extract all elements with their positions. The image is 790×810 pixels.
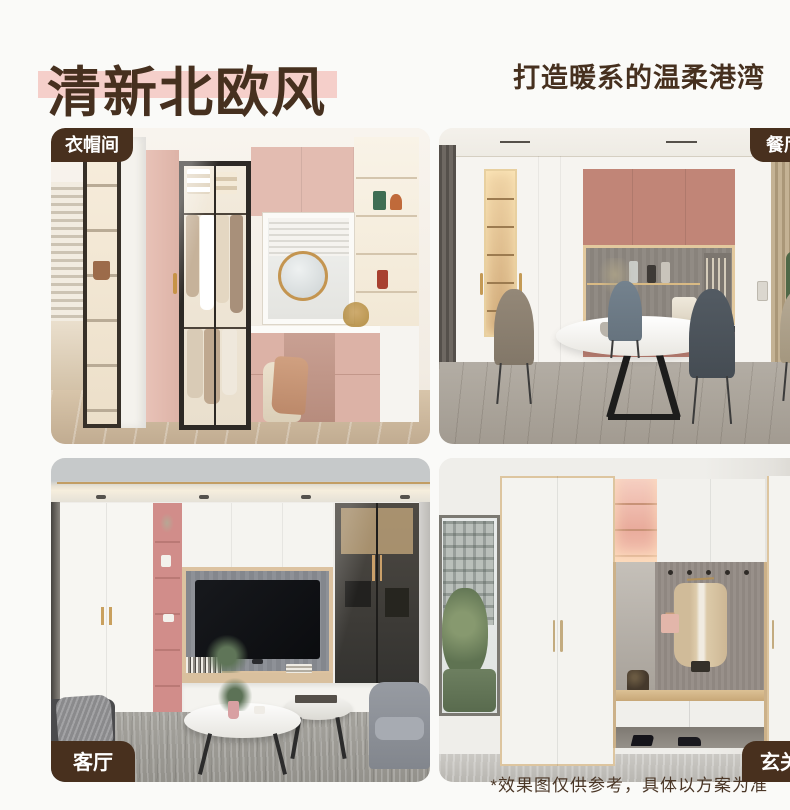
side-table-books: [295, 695, 337, 703]
shelf-plant: [160, 513, 174, 532]
pink-upper-cabinet: [251, 147, 354, 217]
pink-shelf-lines: [155, 507, 180, 711]
wardrobe-seam: [106, 503, 107, 715]
window-greenery: [443, 669, 496, 713]
coat-hook: [744, 570, 749, 575]
photo-dining-room: 餐厅: [439, 128, 790, 444]
tv-stand: [252, 659, 263, 664]
wood-post: [613, 562, 616, 748]
page-subtitle: 打造暖系的温柔港湾: [513, 56, 765, 95]
glass-sheen: [179, 161, 251, 430]
cabinet-seam: [282, 503, 283, 566]
cabinet-handle: [480, 273, 483, 295]
right-shelf-lines: [356, 141, 417, 324]
spotlight: [301, 495, 311, 499]
right-base-cabinet: [380, 326, 419, 422]
dark-wall-edge: [51, 502, 60, 716]
right-wardrobe: [767, 476, 790, 766]
page-title: 清新北欧风: [47, 64, 327, 123]
shelf-wood: [182, 673, 334, 683]
pink-vase: [228, 701, 239, 719]
door-handle: [173, 273, 176, 294]
dining-chair-taupe: [494, 289, 534, 365]
filler-panel: [121, 137, 146, 428]
light-switch: [757, 281, 769, 300]
wardrobe-handle: [101, 607, 104, 625]
disclaimer-footnote: *效果图仅供参考，具体以方案为准: [490, 771, 768, 796]
shelf-decor-green: [373, 191, 386, 210]
cabinet-seam: [632, 169, 633, 245]
window-shade: [269, 218, 349, 256]
decor-books: [286, 664, 313, 674]
shoes: [678, 737, 701, 747]
flower-vase: [343, 302, 370, 327]
wardrobe-handle-long: [553, 620, 556, 652]
shelf-bag: [93, 261, 110, 280]
high-heels: [631, 735, 655, 746]
room-label-cloakroom: 衣帽间: [51, 128, 133, 162]
cabinet-seam: [685, 169, 686, 245]
room-label-entryway: 玄关: [742, 741, 790, 782]
dining-chair-gray-back: [608, 281, 642, 341]
curtain: [439, 145, 456, 373]
ceiling-track: [666, 141, 696, 143]
hand-bag: [661, 614, 678, 633]
spotlight: [400, 495, 410, 499]
cabinet-seam: [231, 503, 232, 566]
bench-top: [615, 690, 765, 701]
wardrobe-handle: [109, 607, 112, 625]
coffee-cup: [254, 706, 265, 714]
dining-chair-dark: [689, 289, 734, 377]
photo-living-room: 客厅: [51, 458, 430, 782]
coat-hook: [687, 570, 692, 575]
upper-cabinets: [182, 503, 334, 566]
ceiling: [51, 458, 430, 502]
plant-foliage: [206, 635, 248, 674]
room-label-dining: 餐厅: [750, 128, 790, 162]
spotlight: [96, 495, 106, 499]
table-leg-bar: [608, 414, 680, 420]
ceiling-track: [500, 141, 530, 143]
hanging-coat: [674, 583, 727, 667]
wardrobe-handle-long: [560, 620, 563, 652]
pink-upper-cabinets: [583, 169, 735, 245]
sofa-blanket: [55, 694, 113, 746]
wardrobe-handle-long: [772, 620, 775, 649]
shelf-decor-orange: [390, 194, 401, 210]
cabinet-seam: [301, 147, 302, 217]
shelf-decor-white: [163, 614, 174, 622]
shelf-decor-white: [161, 555, 171, 566]
pink-lighted-shelves: [615, 479, 657, 562]
coat-hook: [725, 570, 730, 575]
photo-cloakroom: 衣帽间: [51, 128, 430, 444]
spotlight: [199, 495, 209, 499]
ceiling-gold-trim: [57, 482, 430, 484]
glass-jar: [661, 262, 670, 283]
blanket: [271, 356, 309, 415]
wardrobe-seam: [557, 476, 558, 766]
leopard-bag: [627, 670, 650, 691]
promo-page: 清新北欧风 打造暖系的温柔港湾: [0, 0, 790, 810]
cabinet-seam: [710, 479, 711, 562]
glass-reflection: [335, 503, 418, 683]
cabinet-seam: [538, 156, 539, 361]
coat-shadow-bottom: [691, 661, 710, 672]
coat-hook: [706, 570, 711, 575]
drawer-seam: [689, 701, 690, 727]
ceiling: [439, 128, 790, 157]
window-tree: [442, 588, 487, 679]
glass-jar: [647, 265, 655, 282]
photo-entryway: 玄关: [439, 458, 790, 782]
display-shelves: [87, 142, 117, 423]
armchair-cushion: [375, 717, 424, 740]
room-label-living: 客厅: [51, 741, 135, 782]
shelf-decor-red: [377, 270, 388, 289]
